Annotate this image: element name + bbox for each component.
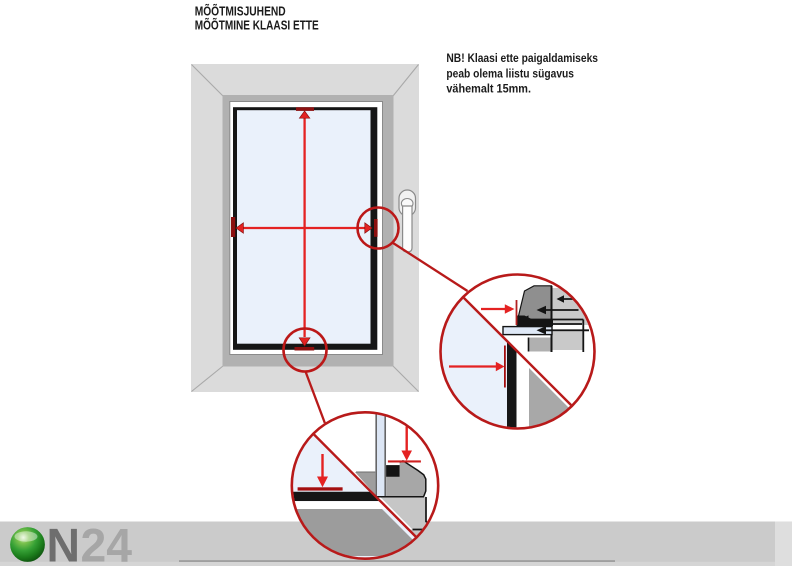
svg-text:MÕÕTMISJUHEND: MÕÕTMISJUHEND bbox=[195, 4, 286, 19]
svg-text:peab olema liistu sügavus: peab olema liistu sügavus bbox=[446, 66, 574, 80]
svg-text:NB! Klaasi ette paigaldamiseks: NB! Klaasi ette paigaldamiseks bbox=[446, 51, 598, 65]
svg-text:MÕÕTMINE KLAASI ETTE: MÕÕTMINE KLAASI ETTE bbox=[195, 18, 319, 33]
svg-text:vähemalt 15mm.: vähemalt 15mm. bbox=[446, 82, 531, 96]
svg-text:24: 24 bbox=[81, 520, 133, 567]
svg-text:N: N bbox=[47, 520, 81, 567]
